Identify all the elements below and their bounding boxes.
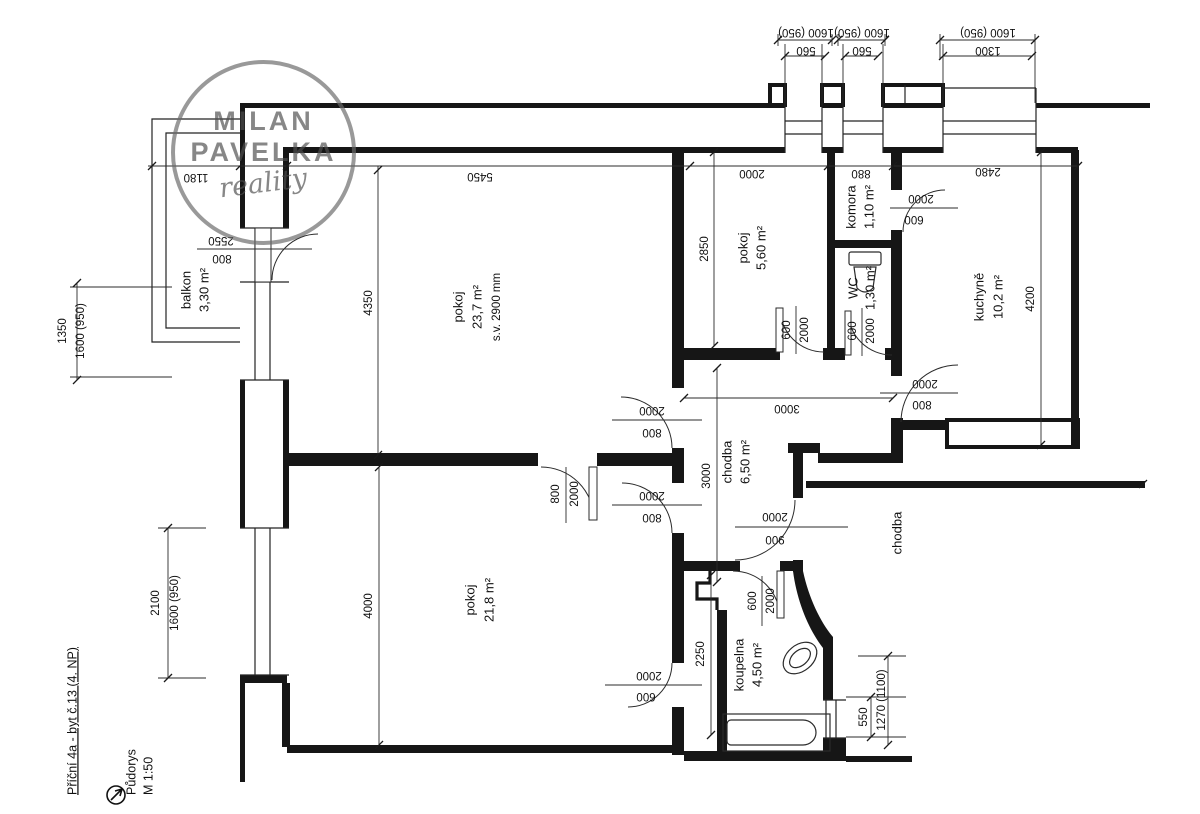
door-leaf-balcony <box>255 228 271 282</box>
room-label-koupelna: koupelna <box>731 638 746 692</box>
window-top-wall <box>785 103 1036 153</box>
dim-1180: 1180 <box>184 171 209 183</box>
dim-window-top-2-width: 560 <box>852 44 871 56</box>
room-note-pokoj1: s.v. 2900 mm <box>491 273 503 341</box>
washbasin <box>777 636 823 680</box>
room-label-pokoj1: pokoj <box>450 291 465 322</box>
room-area-balkon: 3,30 m² <box>196 267 211 312</box>
dim-4350: 4350 <box>363 290 375 316</box>
room-area-pokoj1: 23,7 m² <box>469 284 484 329</box>
dim-window-top-2-size: 1600 (950) <box>834 26 890 38</box>
room-area-koupelna: 4,50 m² <box>749 642 764 687</box>
dim-2000-pokoj2: 2000 <box>739 167 765 179</box>
dim-door-pokoj1-h: 2000 <box>639 404 665 416</box>
dim-door-entrance-h: 2000 <box>762 510 788 522</box>
room-label-pokoj2: pokoj <box>735 232 750 263</box>
dim-door-between-w: 800 <box>550 484 562 503</box>
dim-door-wc-w: 600 <box>847 321 859 340</box>
dim-door-pokoj3b-h: 2000 <box>636 669 662 681</box>
dim-window-top-3-width: 1300 <box>975 44 1001 56</box>
dim-door-koupelna-h: 2000 <box>765 588 777 614</box>
room-label-chodba-spolecna: chodba <box>889 511 904 554</box>
room-label-kuchyne: kuchyně <box>971 273 986 321</box>
dim-1350: 1350 <box>57 318 69 344</box>
room-area-kuchyne: 10,2 m² <box>990 274 1005 319</box>
title-drawing-name: Půdorys <box>124 749 138 795</box>
door-leaf-between-rooms <box>589 467 597 520</box>
room-area-chodba: 6,50 m² <box>737 439 752 484</box>
dim-2850: 2850 <box>699 236 711 262</box>
wall-outlines <box>684 85 1078 610</box>
dim-door-pokoj1-w: 800 <box>642 426 661 438</box>
dim-2250: 2250 <box>695 641 707 667</box>
dim-door-balcony-w: 800 <box>212 252 231 264</box>
north-arrow-icon <box>107 786 125 804</box>
floor-plan-page: 1600 (950) 560 1600 (950) 560 1600 (950)… <box>0 0 1200 814</box>
walls <box>240 103 1150 782</box>
dim-door-kuchyne-w: 800 <box>912 398 931 410</box>
curved-bathroom-wall <box>793 571 833 648</box>
dim-door-komora-h: 2000 <box>908 192 934 204</box>
room-label-pokoj3: pokoj <box>462 584 477 615</box>
dim-1270-1100: 1270 (1100) <box>876 669 888 730</box>
room-label-chodba: chodba <box>719 440 734 483</box>
dim-door-komora-w: 600 <box>904 213 923 225</box>
window-bathroom <box>823 700 846 738</box>
door-arc-kuchyne <box>901 365 958 422</box>
dim-1600-950-b: 1600 (950) <box>169 575 181 631</box>
chimney-flues <box>684 566 717 610</box>
bathtub <box>723 714 830 751</box>
labels: 1600 (950) 560 1600 (950) 560 1600 (950)… <box>57 26 1037 731</box>
dim-880: 880 <box>851 167 870 179</box>
floor-plan-drawing: 1600 (950) 560 1600 (950) 560 1600 (950)… <box>0 0 1200 814</box>
window-left-wall <box>240 228 289 675</box>
room-label-balkon: balkon <box>178 271 193 309</box>
dim-door-pokoj3-h: 2000 <box>639 489 665 501</box>
dim-1600-950-a: 1600 (950) <box>75 303 87 359</box>
room-area-wc: 1,30 m² <box>862 265 877 310</box>
dim-window-top-1-width: 560 <box>796 44 815 56</box>
doors <box>255 190 958 707</box>
title-address: Příční 4a - byt č.13 (4. NP) <box>65 647 79 795</box>
dim-5450: 5450 <box>467 170 493 182</box>
dim-door-pokoj3b-w: 600 <box>636 690 655 702</box>
dim-2480: 2480 <box>975 165 1001 177</box>
dimension-lines <box>70 34 1147 749</box>
dim-3000-vertical: 3000 <box>701 463 713 489</box>
door-arc-between-rooms <box>541 467 594 520</box>
room-label-komora: komora <box>843 185 858 229</box>
door-arc-balcony <box>272 234 318 280</box>
door-leaf-koupelna <box>777 571 784 618</box>
room-area-komora: 1,10 m² <box>861 184 876 229</box>
dim-550: 550 <box>858 707 870 726</box>
dim-3000-horizontal: 3000 <box>774 402 800 414</box>
dim-2100: 2100 <box>150 590 162 616</box>
door-arc-entrance <box>735 500 795 560</box>
dim-door-koupelna-w: 600 <box>747 591 759 610</box>
title-scale: M 1:50 <box>141 757 155 795</box>
dim-window-top-1-size: 1600 (950) <box>778 26 834 38</box>
dim-4000: 4000 <box>363 593 375 619</box>
dim-door-pokoj2-h: 2000 <box>799 317 811 343</box>
room-area-pokoj3: 21,8 m² <box>481 577 496 622</box>
dim-door-kuchyne-h: 2000 <box>912 377 938 389</box>
room-label-wc: WC <box>845 277 860 299</box>
dim-door-between-h: 2000 <box>569 481 581 507</box>
dim-4200: 4200 <box>1025 286 1037 312</box>
dim-door-balcony-h: 2550 <box>208 234 234 246</box>
dim-door-pokoj2-w: 600 <box>781 320 793 339</box>
dim-door-wc-h: 2000 <box>865 318 877 344</box>
dimension-ticks <box>73 36 1147 749</box>
dim-window-top-3-size: 1600 (950) <box>960 26 1016 38</box>
dim-door-entrance-w: 900 <box>765 533 784 545</box>
room-area-pokoj2: 5,60 m² <box>753 225 768 270</box>
dim-door-pokoj3-w: 800 <box>642 511 661 523</box>
title-block: Příční 4a - byt č.13 (4. NP) Půdorys M 1… <box>65 647 155 804</box>
